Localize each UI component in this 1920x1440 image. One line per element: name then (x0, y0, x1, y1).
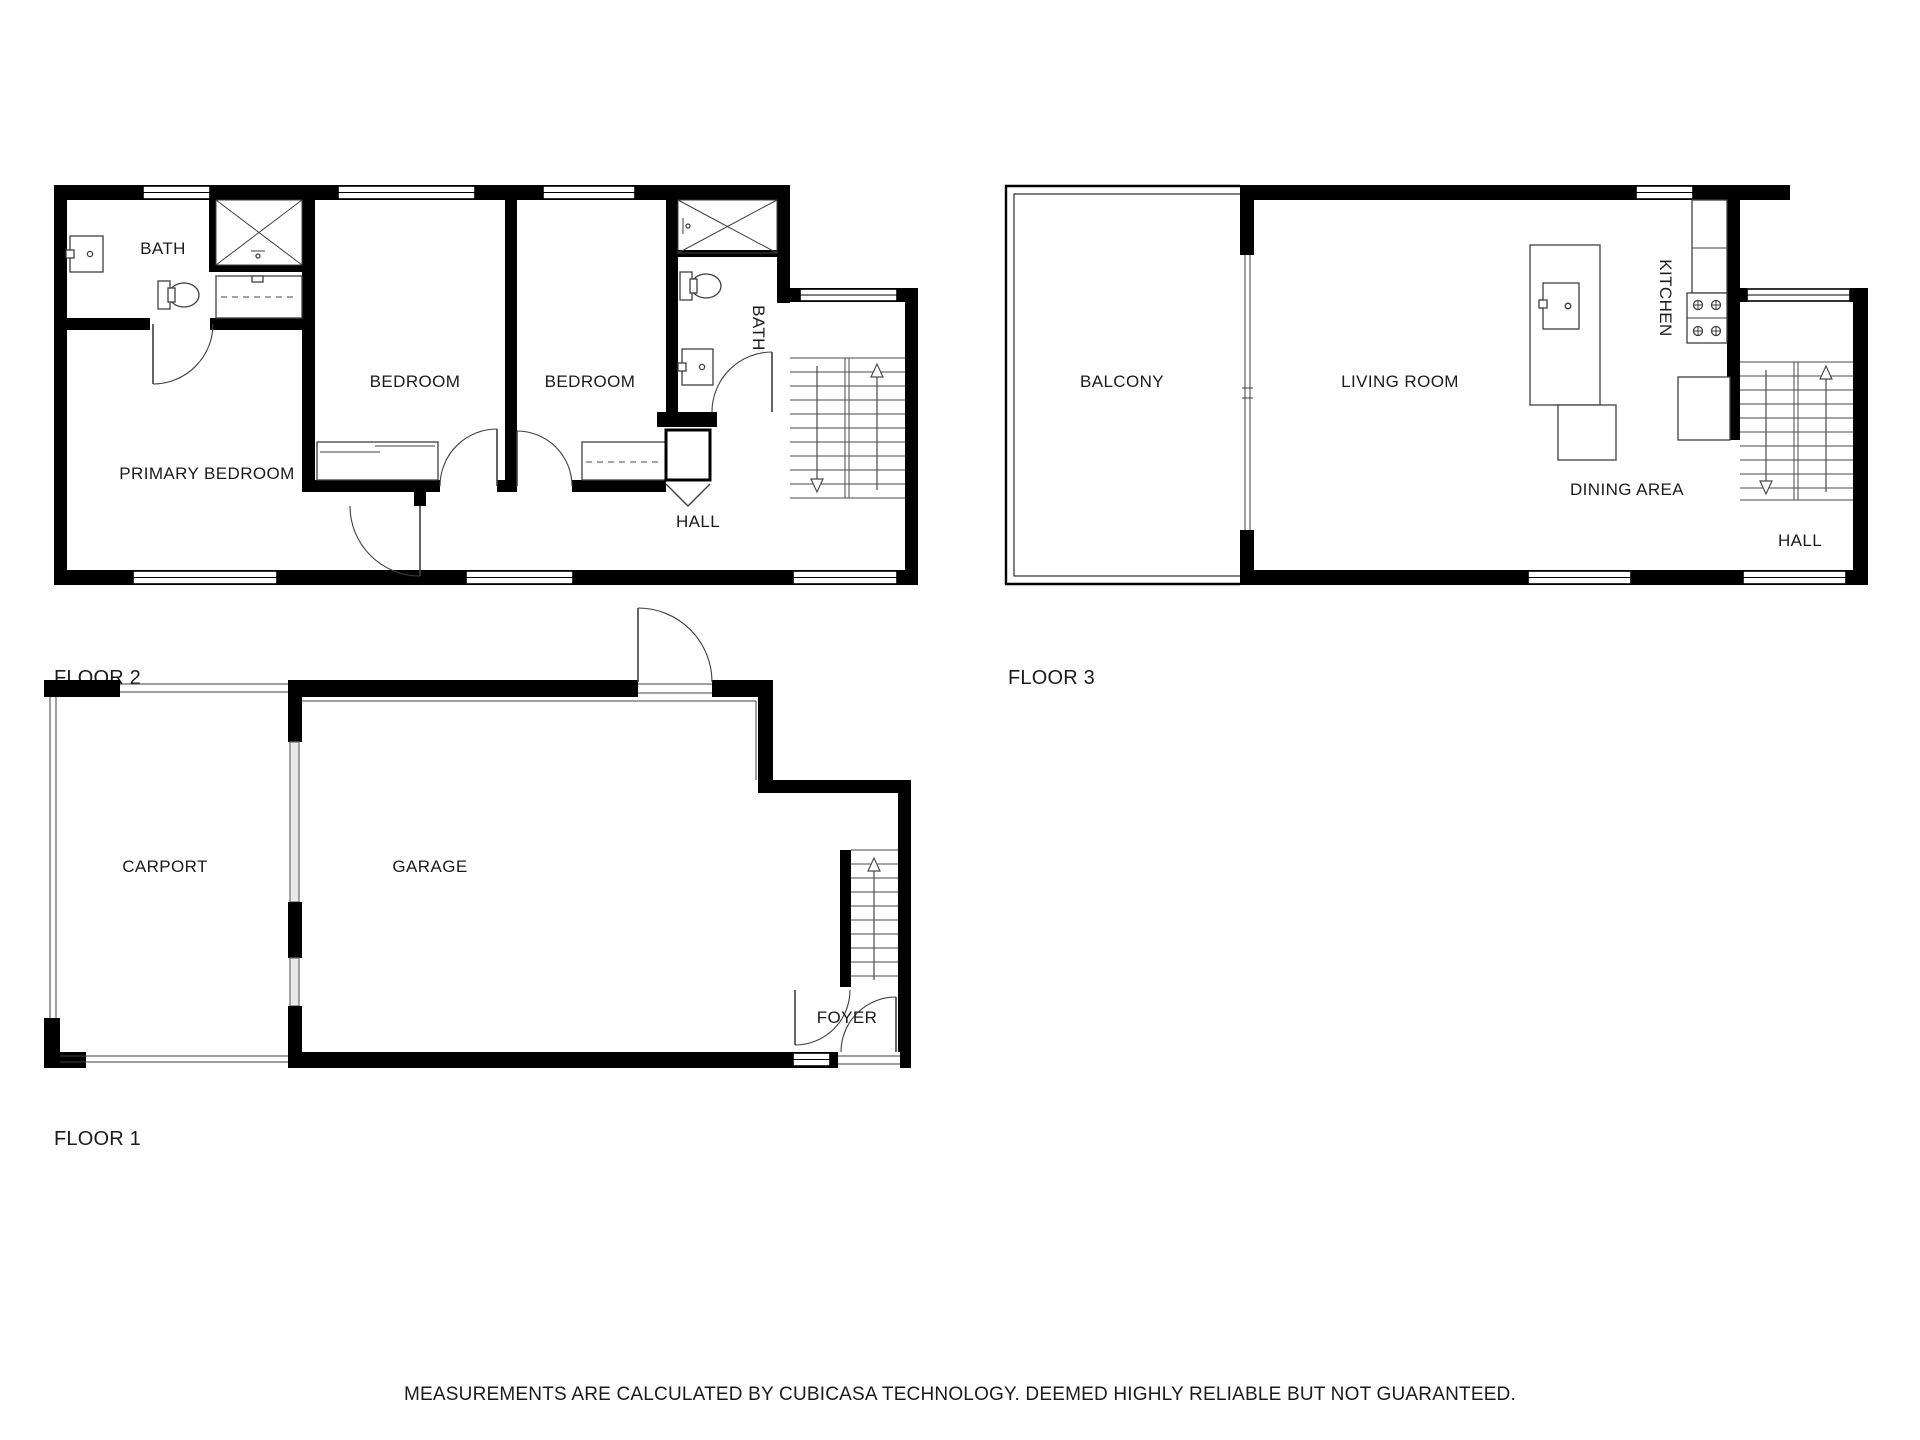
room-label-bath1: BATH (140, 239, 186, 258)
stairs (851, 850, 898, 980)
floor1-label: FLOOR 1 (54, 1128, 141, 1150)
window (1528, 571, 1631, 584)
stairs (790, 358, 905, 498)
room-label-hall-f2: HALL (676, 512, 720, 531)
disclaimer-text: MEASUREMENTS ARE CALCULATED BY CUBICASA … (404, 1384, 1516, 1405)
bathroom-sink (678, 349, 713, 385)
room-label-garage: GARAGE (392, 857, 467, 876)
window (800, 289, 897, 301)
room-label-kitchen: KITCHEN (1656, 259, 1675, 336)
room-label-hall-f3: HALL (1778, 531, 1822, 550)
stairs (1740, 362, 1853, 500)
room-label-bedroom2: BEDROOM (545, 372, 636, 391)
room-label-foyer: FOYER (817, 1008, 878, 1027)
closet (317, 442, 438, 480)
door-swing (517, 431, 572, 486)
refrigerator (1678, 377, 1730, 440)
floorplan-canvas: BATH BEDROOM BEDROOM BATH PRIMARY BEDROO… (0, 0, 1920, 1440)
stove (1687, 293, 1727, 343)
window (1636, 186, 1693, 199)
closet (582, 442, 666, 480)
shower (216, 200, 302, 265)
stairs-down-arrow (811, 366, 823, 492)
room-label-carport: CARPORT (122, 857, 208, 876)
floor2-plan: BATH BEDROOM BEDROOM BATH PRIMARY BEDROO… (54, 185, 918, 689)
shower (678, 200, 777, 253)
door-swing (440, 429, 497, 486)
window (143, 186, 210, 199)
window (1743, 571, 1846, 584)
toilet (158, 281, 199, 309)
floorplan-page: BATH BEDROOM BEDROOM BATH PRIMARY BEDROO… (0, 0, 1920, 1440)
room-label-primary-bedroom: PRIMARY BEDROOM (119, 464, 294, 483)
room-label-dining-area: DINING AREA (1570, 480, 1684, 499)
room-label-bath2: BATH (749, 305, 768, 351)
floor3-label: FLOOR 3 (1008, 667, 1095, 689)
room-label-living-room: LIVING ROOM (1341, 372, 1459, 391)
floor1-plan: CARPORT GARAGE FOYER FLOOR 1 (44, 608, 911, 1150)
carport-garage-divider (288, 680, 302, 1056)
garage-door (638, 608, 712, 697)
bathroom-sink (66, 236, 103, 272)
floor3-plan: BALCONY LIVING ROOM KITCHEN DINING AREA … (1006, 185, 1868, 689)
door-swing (350, 506, 420, 576)
window (793, 1053, 830, 1066)
hall-door-marker (666, 430, 710, 506)
window (338, 186, 475, 199)
bathtub (216, 276, 302, 318)
window (793, 571, 897, 584)
stairs-up-arrow (1820, 366, 1832, 492)
stairs-up-arrow (871, 364, 883, 490)
window (466, 571, 573, 584)
door-swing (712, 352, 772, 412)
kitchen-island (1530, 245, 1616, 460)
toilet (680, 272, 721, 300)
window (133, 571, 277, 584)
kitchen-counter (1692, 200, 1727, 293)
room-label-bedroom1: BEDROOM (370, 372, 461, 391)
sliding-door (1242, 255, 1253, 530)
window (543, 186, 635, 199)
door-swing (153, 324, 213, 384)
room-label-balcony: BALCONY (1080, 372, 1164, 391)
window (1747, 289, 1850, 301)
